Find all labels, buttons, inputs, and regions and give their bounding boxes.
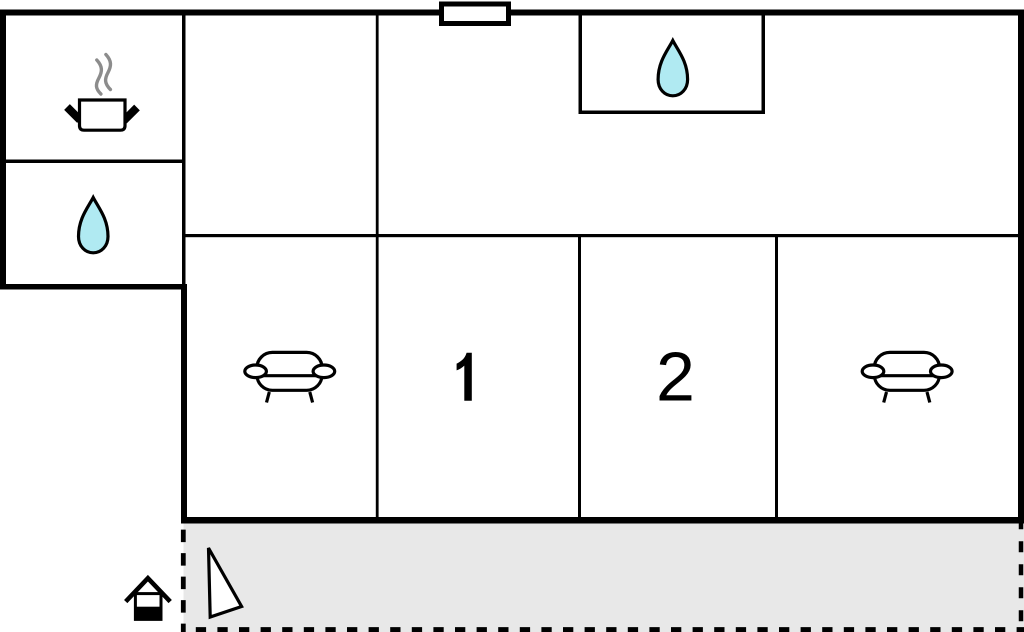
svg-text:2: 2 bbox=[656, 338, 695, 416]
